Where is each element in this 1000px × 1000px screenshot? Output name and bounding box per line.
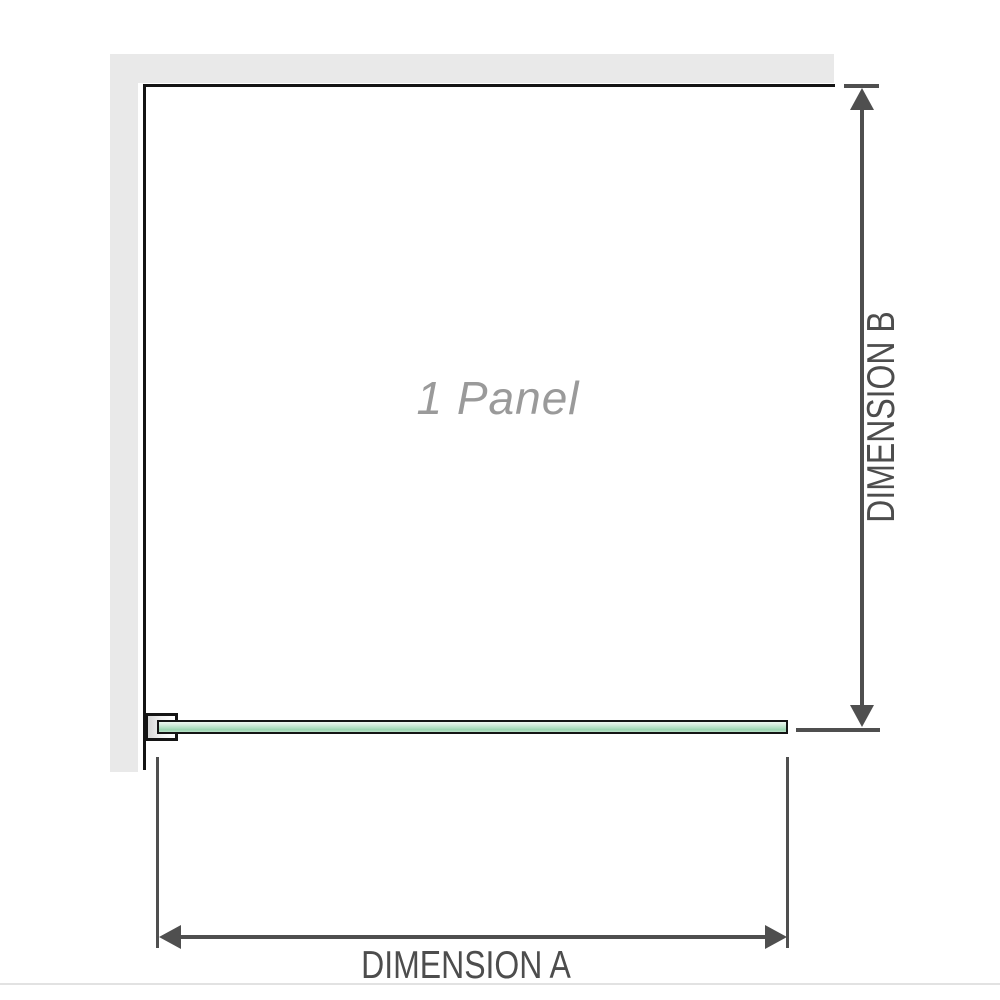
dim-b-arrow-down-icon [850, 705, 874, 727]
dimension-a-callout [156, 757, 789, 949]
dim-b-top-tick [844, 84, 879, 88]
dim-b-line [860, 106, 864, 708]
dim-a-arrow-left-icon [159, 925, 181, 949]
dim-b-arrow-up-icon [850, 88, 874, 110]
dim-a-left-extension [156, 757, 159, 948]
dimension-lines [0, 0, 1000, 1000]
dim-a-arrow-right-icon [765, 925, 787, 949]
dim-a-right-extension [786, 757, 789, 948]
dim-a-line [178, 935, 768, 939]
dim-b-bottom-tick [796, 728, 880, 732]
panel-dimension-diagram: 1 Panel DIMENSION A DIMENSION B [0, 0, 1000, 1000]
dimension-b-callout [796, 84, 880, 732]
